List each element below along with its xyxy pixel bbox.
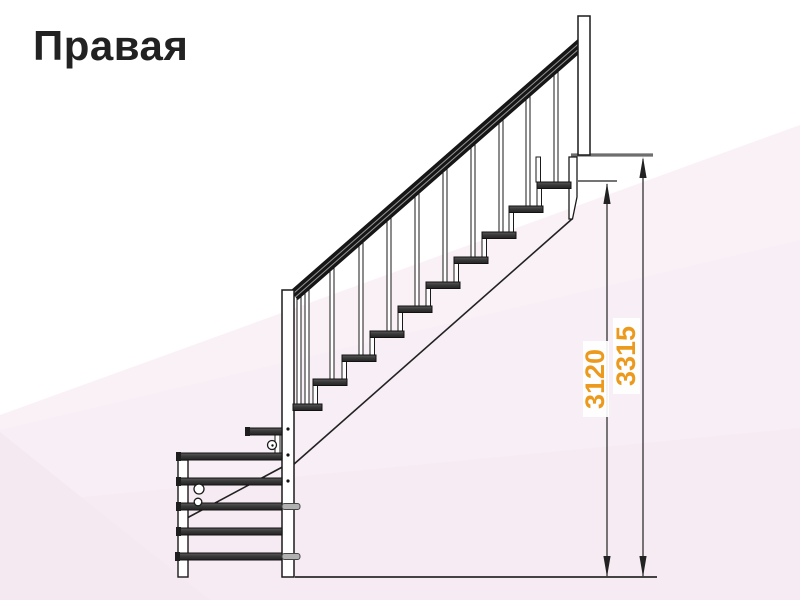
central-newel-post	[282, 290, 294, 577]
bolt-center-dot	[271, 444, 273, 446]
upper-flight-treads	[293, 182, 571, 411]
dimension-value-3315: 3315	[611, 326, 641, 386]
diagram-canvas: Правая	[0, 0, 800, 600]
dimension-annotations: 3120 3315	[578, 157, 647, 577]
handrail	[290, 39, 586, 300]
bolt-circles	[194, 441, 277, 506]
stringer-lines	[187, 219, 572, 518]
staircase-drawing: 3120 3315	[0, 0, 800, 600]
dimension-value-3120: 3120	[580, 349, 610, 409]
tread-connectors	[313, 157, 542, 404]
top-newel-post	[578, 16, 590, 155]
balusters	[297, 69, 558, 404]
